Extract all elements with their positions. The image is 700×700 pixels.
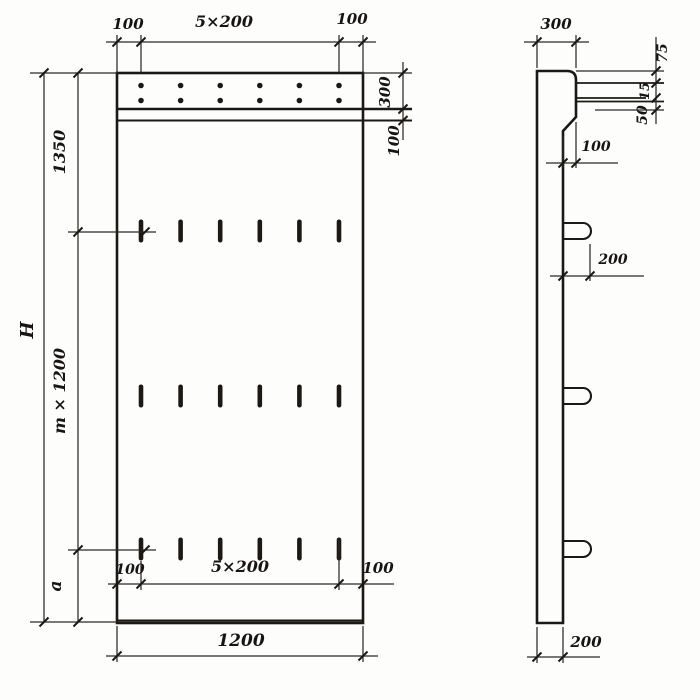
lifting-loop [563,541,591,557]
anchor-dot [138,83,144,89]
anchor-dot [138,98,144,104]
panel-outline [117,73,363,623]
slot-mark [258,220,263,243]
anchor-dot [336,83,342,89]
dim-label: 300 [376,76,394,108]
technical-drawing-sheet: 100 5×200 100 300 100 H 1350 m × 1200 a … [0,0,700,700]
anchor-dot [257,98,263,104]
side-dim-edge-stack: 75 15 50 [635,37,671,125]
anchor-dots-row-2 [138,98,342,104]
anchor-dot [217,98,223,104]
side-dim-step: 100 [546,122,618,168]
slot-mark [258,385,263,408]
dim-label: 100 [336,10,368,28]
lifting-loop [563,223,591,239]
dim-label: 1350 [50,130,69,175]
slot-row-middle [139,385,342,408]
dim-label: 100 [362,559,394,577]
dim-label: 100 [115,562,144,578]
slot-mark [178,538,183,561]
front-dim-overall-width: 1200 [106,626,378,662]
front-dim-left-heights: H 1350 m × 1200 a [17,69,156,627]
dim-label: H [17,321,38,340]
anchor-dot [297,83,303,89]
anchor-dots-row-1 [138,83,342,89]
dim-label: 5×200 [211,557,269,576]
dim-label: 100 [112,15,144,33]
slot-mark [297,385,302,408]
dim-label: 100 [385,125,403,157]
dim-label: 5×200 [195,12,253,31]
dim-label: 200 [597,252,627,268]
slot-mark [218,385,223,408]
anchor-dot [297,98,303,104]
side-dim-top-thickness: 300 [524,15,589,68]
panel-drawing: 100 5×200 100 300 100 H 1350 m × 1200 a … [0,0,700,700]
dim-label: a [46,580,66,591]
slot-mark [139,220,144,243]
anchor-dot [178,98,184,104]
dim-label: 300 [540,15,572,33]
dim-label: 1200 [217,631,264,651]
dim-label: m × 1200 [50,348,69,434]
slot-mark [337,385,342,408]
slot-row-upper [139,220,342,243]
front-dim-bottom-spacing: 100 5×200 100 [108,539,394,590]
front-view [117,73,412,623]
anchor-dot [217,83,223,89]
front-dim-top-spacing: 100 5×200 100 [106,10,376,73]
dim-label: 15 [638,82,653,100]
anchor-dot [257,83,263,89]
slot-mark [297,538,302,561]
lifting-loop [563,388,591,404]
slot-mark [139,538,144,561]
slot-mark [297,220,302,243]
slot-mark [337,220,342,243]
slot-mark [178,220,183,243]
anchor-dot [336,98,342,104]
dim-label: 50 [635,105,651,125]
slot-mark [178,385,183,408]
slot-mark [139,385,144,408]
dim-label: 100 [581,139,610,155]
dim-label: 200 [569,633,602,651]
slot-mark [218,220,223,243]
dim-label: 75 [655,43,671,62]
side-dim-bottom-thickness: 200 [527,627,602,663]
anchor-dot [178,83,184,89]
